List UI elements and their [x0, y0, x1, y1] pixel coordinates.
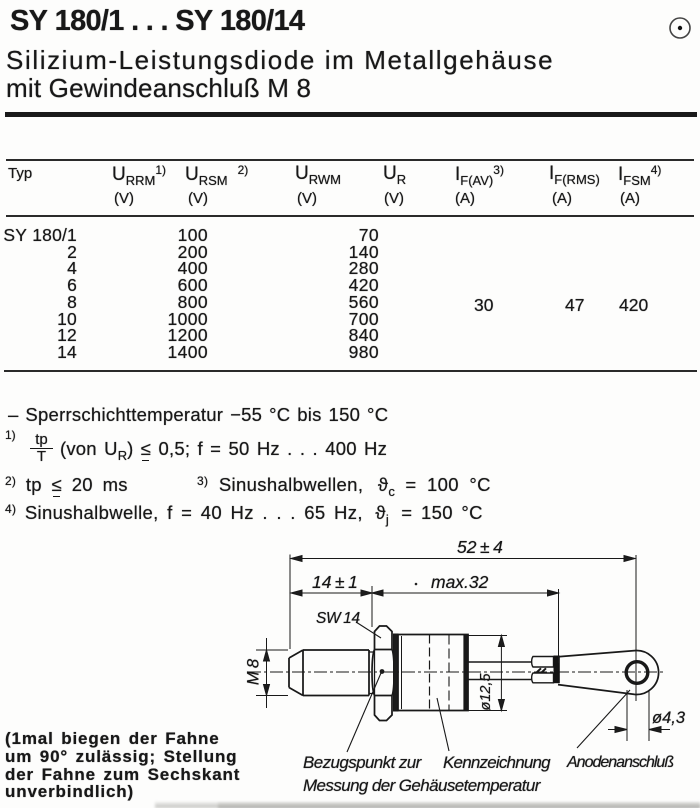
svg-text:14 ± 1: 14 ± 1 — [312, 572, 358, 592]
svg-text:ø4,3: ø4,3 — [652, 709, 686, 727]
svg-text:52 ± 4: 52 ± 4 — [457, 537, 503, 557]
svg-text:M 8: M 8 — [245, 658, 263, 685]
svg-text:SW 14: SW 14 — [316, 610, 360, 627]
svg-text:ø12,5: ø12,5 — [478, 672, 494, 710]
svg-text:max.32: max.32 — [431, 572, 489, 592]
